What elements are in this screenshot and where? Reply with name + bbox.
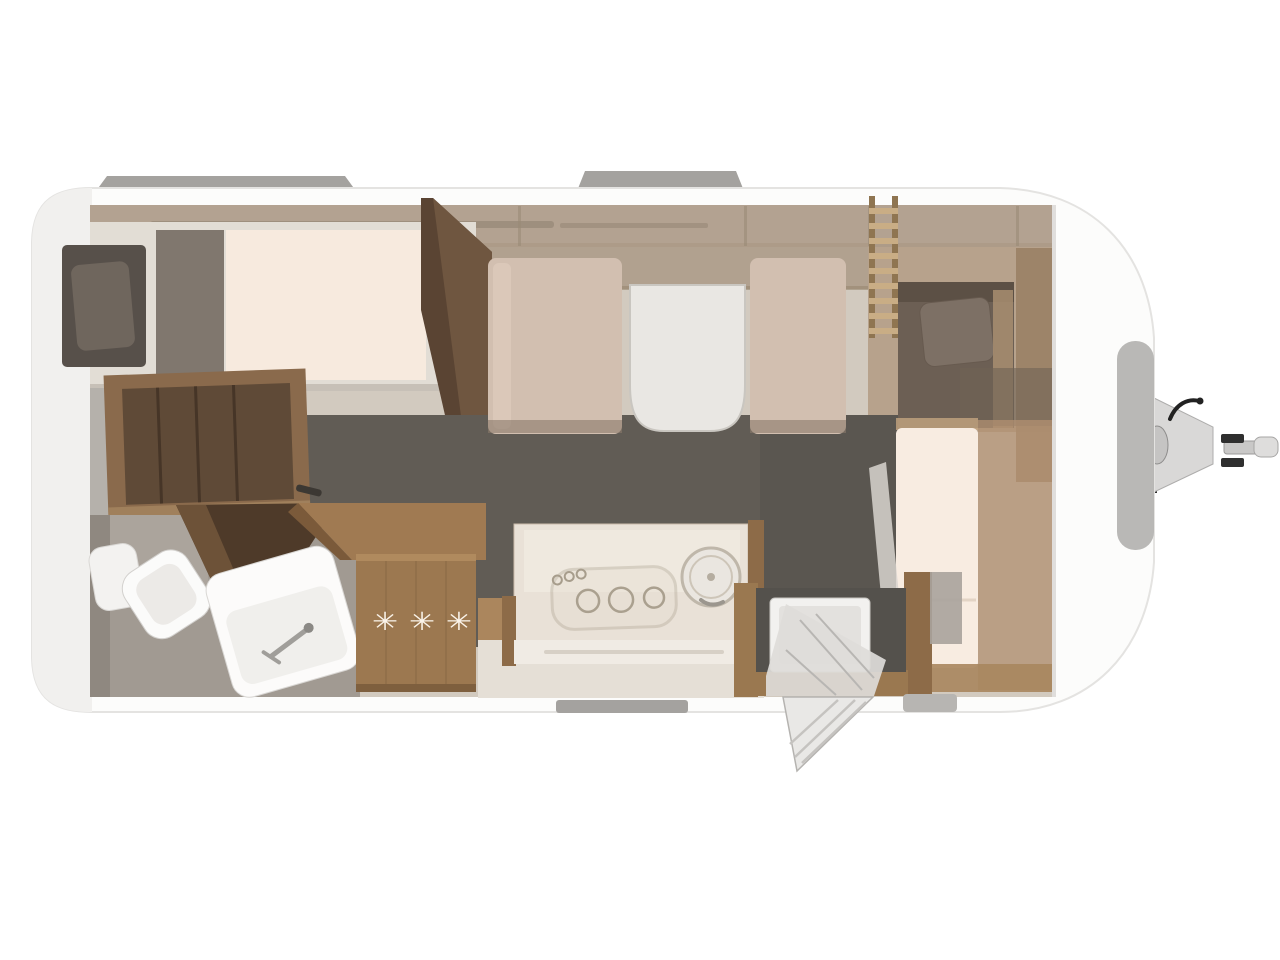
rear-bed-pillow <box>70 261 135 352</box>
roof-vent-bottom <box>556 700 688 713</box>
bench-right-front <box>750 420 846 433</box>
clamp-bottom <box>1221 458 1244 467</box>
fridge-top-strip <box>356 554 476 561</box>
bunk-lower-shadow <box>960 368 1052 426</box>
ladder-rung <box>869 208 898 214</box>
ladder-rung <box>869 313 898 319</box>
wardrobe <box>104 368 311 521</box>
hob-outline <box>551 566 677 630</box>
kitchen <box>478 520 764 698</box>
dinette <box>488 258 846 434</box>
ladder-rung <box>869 253 898 259</box>
floorplan-canvas: ✳ ✳ ✳ <box>0 0 1280 960</box>
rear-bed <box>62 222 476 391</box>
front-window <box>1117 341 1154 550</box>
wardrobe-interior <box>122 383 294 505</box>
sink-drain <box>707 573 715 581</box>
handbrake-knob <box>1197 398 1204 405</box>
drawer-handle <box>544 650 724 654</box>
awning-rail-line-2 <box>560 223 708 228</box>
door-right-gray-patch <box>930 572 962 644</box>
rear-bed-mattress <box>226 230 426 380</box>
ladder-rung <box>869 223 898 229</box>
locker-divider <box>518 206 521 246</box>
bench-left-highlight <box>493 263 511 429</box>
caravan-floorplan-image: ✳ ✳ ✳ <box>0 0 1280 960</box>
hob <box>551 566 677 630</box>
entry-step-tab <box>903 694 957 712</box>
fridge-bottom-strip <box>356 684 476 692</box>
bunk-pillow <box>919 297 995 368</box>
hitch-assembly <box>1142 397 1279 493</box>
ladder-rung <box>869 238 898 244</box>
ladder-rung <box>869 298 898 304</box>
locker-divider <box>1016 206 1019 246</box>
bench-left-front <box>488 420 622 433</box>
dinette-table <box>630 285 745 431</box>
shell-inner-seam <box>1052 205 1056 697</box>
ladder-rung <box>869 328 898 334</box>
dinette-bench-right <box>750 258 846 434</box>
rear-bed-blanket <box>156 230 224 380</box>
coupling-head <box>1254 437 1278 457</box>
interior: ✳ ✳ ✳ <box>62 196 1056 701</box>
door-right-wall-wood <box>904 572 932 696</box>
freezer-stars-icon: ✳ ✳ ✳ <box>372 607 472 636</box>
clamp-top <box>1221 434 1244 443</box>
kitchen-wood-left <box>502 596 516 666</box>
ladder-rung <box>869 268 898 274</box>
front-bed-side-wood <box>978 420 1052 690</box>
entrance-door-open-panel <box>783 697 873 771</box>
locker-divider <box>744 206 747 246</box>
ladder-rung <box>869 283 898 289</box>
